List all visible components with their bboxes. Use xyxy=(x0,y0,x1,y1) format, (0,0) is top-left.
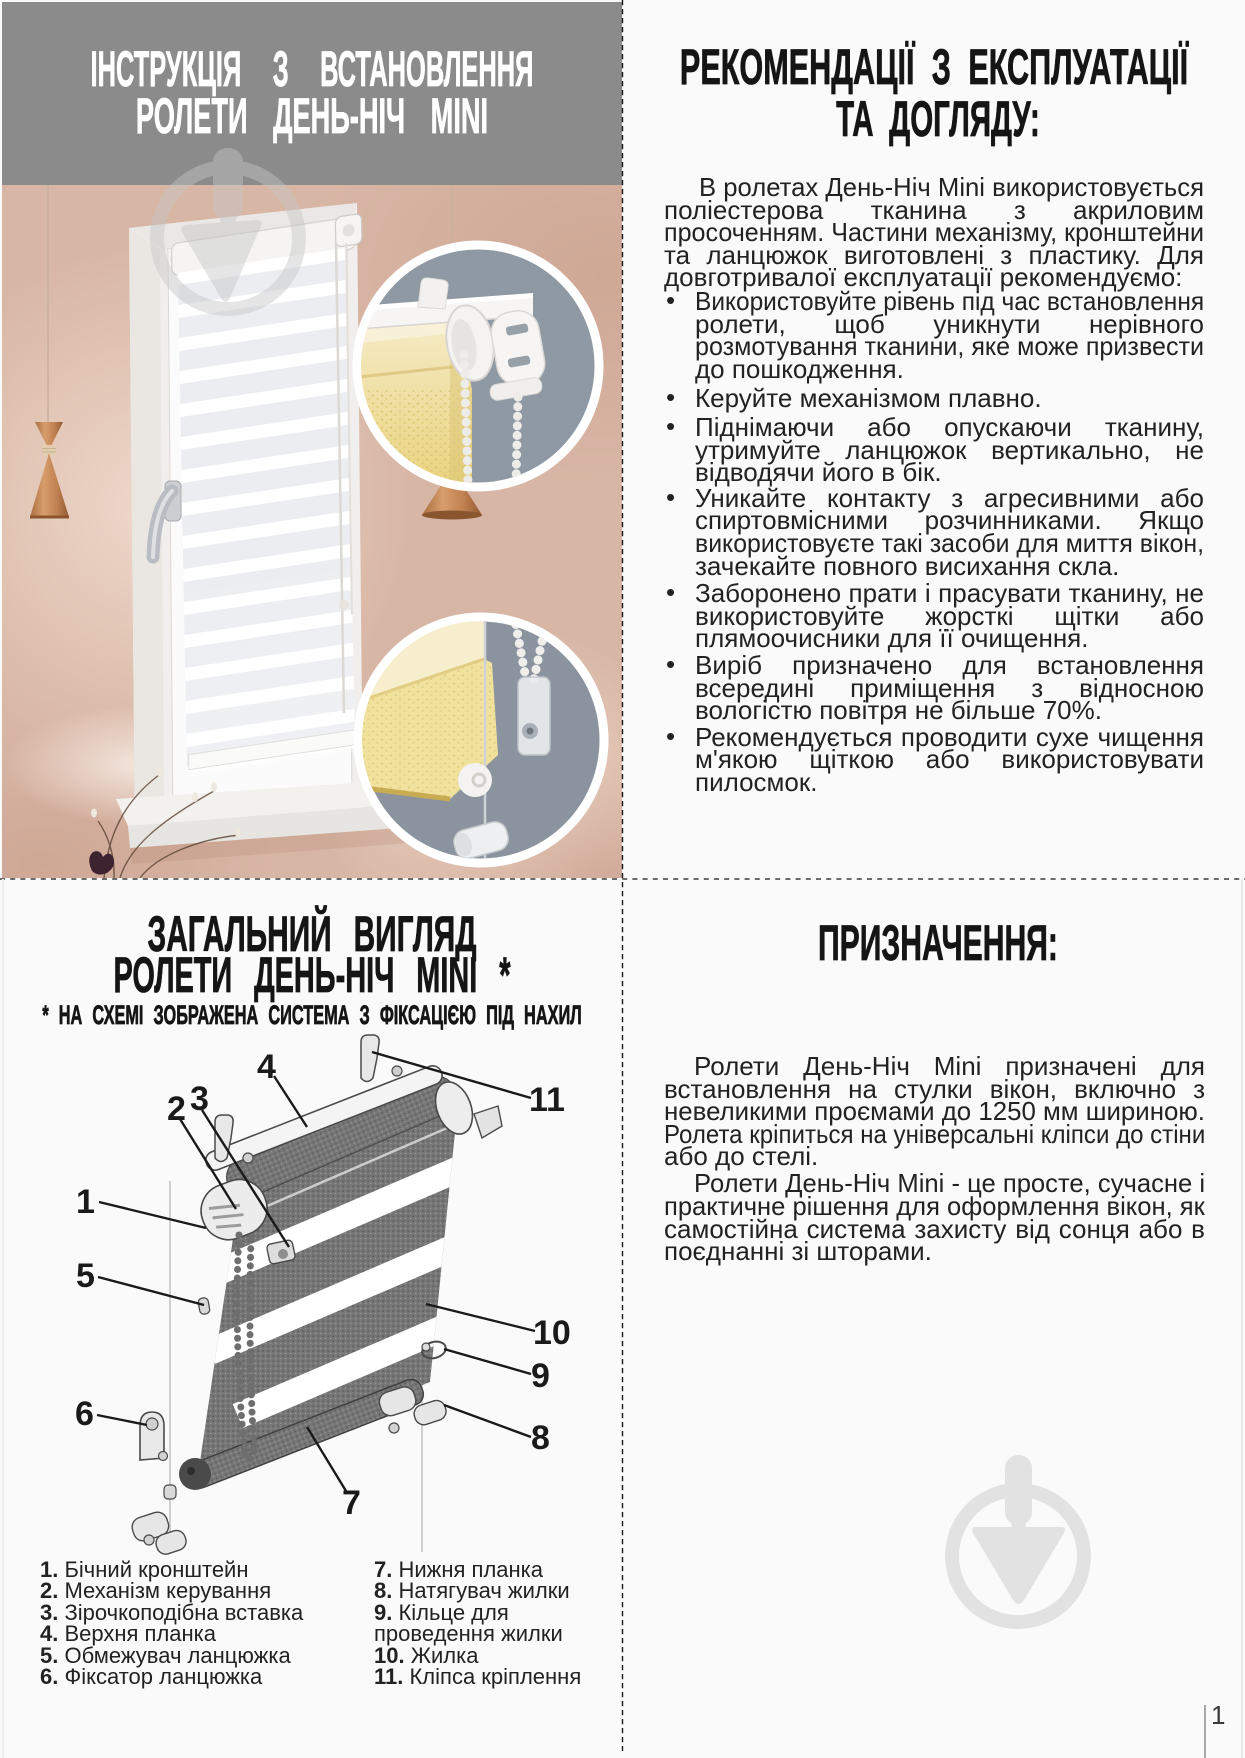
svg-text:8: 8 xyxy=(531,1419,550,1457)
svg-text:6: 6 xyxy=(75,1395,94,1433)
svg-text:5: 5 xyxy=(76,1257,95,1295)
svg-text:4: 4 xyxy=(257,1048,276,1086)
svg-text:9: 9 xyxy=(531,1357,550,1395)
svg-text:7: 7 xyxy=(342,1484,361,1522)
svg-text:11: 11 xyxy=(529,1081,565,1119)
svg-text:10: 10 xyxy=(533,1314,571,1352)
svg-text:2: 2 xyxy=(167,1090,186,1128)
svg-text:3: 3 xyxy=(190,1080,209,1118)
svg-text:1: 1 xyxy=(76,1183,95,1221)
